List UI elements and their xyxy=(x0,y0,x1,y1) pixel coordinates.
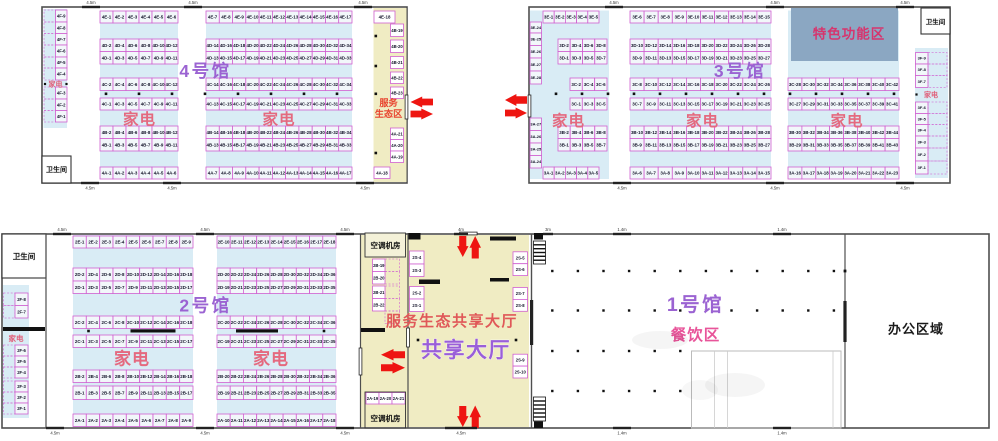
svg-text:3C-17: 3C-17 xyxy=(701,102,714,107)
svg-text:2A-12: 2A-12 xyxy=(244,418,257,423)
svg-text:3E-5: 3E-5 xyxy=(589,15,599,20)
svg-text:2B-28: 2B-28 xyxy=(270,374,283,379)
svg-text:4E-4: 4E-4 xyxy=(141,15,151,20)
svg-text:2E-10: 2E-10 xyxy=(218,240,230,245)
svg-text:3C-25: 3C-25 xyxy=(758,102,771,107)
svg-text:4F-8: 4F-8 xyxy=(57,25,66,30)
svg-text:2A-14: 2A-14 xyxy=(270,418,283,423)
svg-text:3C-33: 3C-33 xyxy=(831,102,844,107)
svg-text:4F-3: 4F-3 xyxy=(57,91,66,96)
svg-text:4.5m: 4.5m xyxy=(900,186,910,191)
svg-text:3D-17: 3D-17 xyxy=(687,55,700,60)
svg-text:2E-1: 2E-1 xyxy=(75,240,85,245)
svg-text:3C-15: 3C-15 xyxy=(687,102,700,107)
svg-text:3C-10: 3C-10 xyxy=(645,82,658,87)
svg-text:2D-15: 2D-15 xyxy=(167,285,180,290)
svg-text:3E-14: 3E-14 xyxy=(744,15,756,20)
svg-text:3C-2: 3C-2 xyxy=(571,82,581,87)
svg-text:3D-28: 3D-28 xyxy=(758,43,771,48)
svg-text:4E-10: 4E-10 xyxy=(247,15,259,20)
svg-text:卫生间: 卫生间 xyxy=(13,251,36,261)
svg-text:服务: 服务 xyxy=(379,97,398,108)
svg-text:4A-2: 4A-2 xyxy=(115,171,125,176)
svg-text:3B-7: 3B-7 xyxy=(596,142,606,147)
svg-text:4C-29: 4C-29 xyxy=(313,102,326,107)
svg-text:2D-9: 2D-9 xyxy=(128,285,138,290)
svg-text:3D-19: 3D-19 xyxy=(701,55,714,60)
svg-text:2A-9: 2A-9 xyxy=(181,418,191,423)
svg-text:3B-42: 3B-42 xyxy=(872,130,885,135)
svg-text:服务生态共享大厅: 服务生态共享大厅 xyxy=(386,312,518,330)
svg-text:4C-3: 4C-3 xyxy=(115,102,125,107)
svg-text:2C-36: 2C-36 xyxy=(323,320,336,325)
svg-text:4E-3: 4E-3 xyxy=(128,15,138,20)
svg-text:2E-7: 2E-7 xyxy=(155,240,165,245)
svg-text:4C-18: 4C-18 xyxy=(233,82,246,87)
svg-text:3B-25: 3B-25 xyxy=(744,142,757,147)
svg-text:3E-9: 3E-9 xyxy=(675,15,685,20)
svg-text:2D-35: 2D-35 xyxy=(323,285,336,290)
svg-text:3A-10: 3A-10 xyxy=(687,171,700,176)
svg-text:2A-15: 2A-15 xyxy=(284,418,297,423)
svg-text:2S-4: 2S-4 xyxy=(412,255,422,260)
svg-text:4B-15: 4B-15 xyxy=(220,142,233,147)
svg-text:4F-5: 4F-5 xyxy=(57,60,66,65)
svg-text:2D-11: 2D-11 xyxy=(140,285,152,290)
svg-text:2C-26: 2C-26 xyxy=(257,320,270,325)
svg-text:3C-31: 3C-31 xyxy=(817,102,830,107)
svg-text:3F-5: 3F-5 xyxy=(918,116,927,121)
svg-text:3B-9: 3B-9 xyxy=(632,142,642,147)
svg-text:3B-44: 3B-44 xyxy=(886,130,899,135)
svg-text:3E-3: 3E-3 xyxy=(566,15,576,20)
svg-text:2A-5: 2A-5 xyxy=(128,418,138,423)
svg-text:4B-12: 4B-12 xyxy=(165,130,178,135)
svg-text:2D-14: 2D-14 xyxy=(154,272,167,277)
svg-text:4B-11: 4B-11 xyxy=(166,142,178,147)
svg-text:2D-18: 2D-18 xyxy=(180,272,193,277)
svg-text:4B-25: 4B-25 xyxy=(286,142,299,147)
svg-text:特色功能区: 特色功能区 xyxy=(813,26,886,42)
svg-text:4A-12: 4A-12 xyxy=(273,171,286,176)
svg-text:3B-17: 3B-17 xyxy=(687,142,700,147)
svg-text:家电: 家电 xyxy=(686,111,719,130)
svg-text:3E-6: 3E-6 xyxy=(632,15,642,20)
svg-text:2B-35: 2B-35 xyxy=(323,390,336,395)
svg-text:4E-16: 4E-16 xyxy=(326,15,338,20)
svg-text:4B-29: 4B-29 xyxy=(313,142,326,147)
svg-text:2B-19: 2B-19 xyxy=(373,263,385,268)
svg-text:4A-17: 4A-17 xyxy=(339,171,352,176)
svg-text:3C-7: 3C-7 xyxy=(632,102,642,107)
svg-text:3A-24: 3A-24 xyxy=(530,159,542,164)
svg-text:3B-21: 3B-21 xyxy=(716,142,729,147)
svg-text:2F-6: 2F-6 xyxy=(17,348,26,353)
svg-text:4E-14: 4E-14 xyxy=(300,15,312,20)
svg-text:3B-5: 3B-5 xyxy=(584,142,594,147)
svg-text:2A-18: 2A-18 xyxy=(323,418,336,423)
svg-text:3A-25: 3A-25 xyxy=(530,147,542,152)
svg-text:3C-35: 3C-35 xyxy=(844,102,857,107)
svg-text:3A-14: 3A-14 xyxy=(744,171,757,176)
svg-text:3F-3: 3F-3 xyxy=(918,139,927,144)
svg-text:3C-3: 3C-3 xyxy=(584,102,594,107)
svg-text:2D-13: 2D-13 xyxy=(154,285,167,290)
svg-text:2D-8: 2D-8 xyxy=(115,272,125,277)
svg-text:4C-9: 4C-9 xyxy=(154,102,164,107)
svg-text:4A-21: 4A-21 xyxy=(391,131,403,136)
svg-text:2B-13: 2B-13 xyxy=(154,390,167,395)
svg-text:2D-10: 2D-10 xyxy=(127,272,140,277)
svg-text:2C-3: 2C-3 xyxy=(88,339,98,344)
svg-text:2D-4: 2D-4 xyxy=(88,272,98,277)
svg-text:2E-18: 2E-18 xyxy=(323,240,335,245)
svg-text:4D-29: 4D-29 xyxy=(313,55,326,60)
svg-text:2C-28: 2C-28 xyxy=(270,320,283,325)
svg-text:4C-22: 4C-22 xyxy=(260,82,273,87)
svg-text:2F-5: 2F-5 xyxy=(17,359,26,364)
svg-text:2B-31: 2B-31 xyxy=(297,390,310,395)
svg-text:4C-25: 4C-25 xyxy=(286,102,299,107)
svg-text:2B-19: 2B-19 xyxy=(218,390,231,395)
svg-text:2B-16: 2B-16 xyxy=(167,374,180,379)
svg-text:4D-13: 4D-13 xyxy=(207,55,220,60)
svg-text:3A-15: 3A-15 xyxy=(758,171,771,176)
svg-text:3B-40: 3B-40 xyxy=(858,130,871,135)
svg-text:家电: 家电 xyxy=(114,349,150,369)
svg-text:4C-24: 4C-24 xyxy=(273,82,286,87)
svg-text:3A-5: 3A-5 xyxy=(589,171,599,176)
svg-text:2D-28: 2D-28 xyxy=(270,272,283,277)
svg-text:3A-12: 3A-12 xyxy=(716,171,729,176)
svg-text:2B-7: 2B-7 xyxy=(115,390,125,395)
svg-text:3D-24: 3D-24 xyxy=(730,43,743,48)
svg-text:4B-31: 4B-31 xyxy=(326,142,339,147)
svg-text:4B-19: 4B-19 xyxy=(246,142,259,147)
svg-text:4B-23: 4B-23 xyxy=(391,90,403,95)
svg-text:2D-2: 2D-2 xyxy=(75,272,85,277)
svg-text:3C-34: 3C-34 xyxy=(831,82,844,87)
svg-text:2C-22: 2C-22 xyxy=(231,320,244,325)
svg-text:家电: 家电 xyxy=(123,110,156,129)
svg-text:2B-22: 2B-22 xyxy=(231,374,244,379)
svg-text:2S-9: 2S-9 xyxy=(516,358,526,363)
svg-text:4C-4: 4C-4 xyxy=(115,82,125,87)
svg-text:3B-4: 3B-4 xyxy=(572,130,582,135)
svg-text:3B-32: 3B-32 xyxy=(803,130,816,135)
svg-text:2D-23: 2D-23 xyxy=(244,285,257,290)
svg-text:3B-18: 3B-18 xyxy=(687,130,700,135)
svg-text:3C-16: 3C-16 xyxy=(687,82,700,87)
svg-text:2D-26: 2D-26 xyxy=(257,272,270,277)
svg-text:2B-23: 2B-23 xyxy=(244,390,257,395)
svg-text:2B-27: 2B-27 xyxy=(270,390,283,395)
svg-text:3D-9: 3D-9 xyxy=(632,55,642,60)
svg-text:2E-12: 2E-12 xyxy=(244,240,256,245)
svg-text:4A-1: 4A-1 xyxy=(102,171,112,176)
svg-text:4E-6: 4E-6 xyxy=(167,15,177,20)
svg-text:2B-11: 2B-11 xyxy=(140,390,152,395)
svg-text:2B-25: 2B-25 xyxy=(257,390,270,395)
svg-text:办公区域: 办公区域 xyxy=(888,322,944,337)
svg-text:3E-28: 3E-28 xyxy=(530,75,541,80)
svg-text:2D-36: 2D-36 xyxy=(323,272,336,277)
svg-text:4F-1: 4F-1 xyxy=(57,114,66,119)
svg-text:2A-7: 2A-7 xyxy=(155,418,165,423)
svg-text:2D-20: 2D-20 xyxy=(218,272,231,277)
svg-text:4.5m: 4.5m xyxy=(57,227,67,232)
svg-text:2S-7: 2S-7 xyxy=(516,291,526,296)
svg-text:2E-3: 2E-3 xyxy=(102,240,112,245)
svg-text:4C-14: 4C-14 xyxy=(207,82,220,87)
svg-text:2D-27: 2D-27 xyxy=(270,285,283,290)
svg-text:2S-3: 2S-3 xyxy=(412,268,422,273)
svg-text:3B-19: 3B-19 xyxy=(701,142,714,147)
svg-text:4F-6: 4F-6 xyxy=(57,49,66,54)
svg-text:3B-6: 3B-6 xyxy=(584,130,594,135)
svg-text:4B-9: 4B-9 xyxy=(154,142,164,147)
svg-text:4E-7: 4E-7 xyxy=(208,15,218,20)
svg-text:3A-7: 3A-7 xyxy=(646,171,656,176)
svg-text:2D-6: 2D-6 xyxy=(101,272,111,277)
svg-text:2C-6: 2C-6 xyxy=(101,320,111,325)
svg-text:4E-8: 4E-8 xyxy=(221,15,231,20)
svg-text:2C-23: 2C-23 xyxy=(244,339,257,344)
svg-text:2A-16: 2A-16 xyxy=(297,418,310,423)
svg-text:3A-26: 3A-26 xyxy=(530,134,542,139)
svg-text:4A-14: 4A-14 xyxy=(299,171,312,176)
svg-text:3F-7: 3F-7 xyxy=(918,79,927,84)
svg-text:3A-2: 3A-2 xyxy=(555,171,565,176)
svg-text:3B-38: 3B-38 xyxy=(844,130,857,135)
svg-text:3E-12: 3E-12 xyxy=(716,15,728,20)
svg-text:4A-13: 4A-13 xyxy=(286,171,299,176)
svg-text:2C-34: 2C-34 xyxy=(310,320,323,325)
svg-text:2C-1: 2C-1 xyxy=(75,339,85,344)
svg-text:3C-5: 3C-5 xyxy=(596,102,606,107)
svg-text:3A-20: 3A-20 xyxy=(844,171,857,176)
svg-text:3C-36: 3C-36 xyxy=(844,82,857,87)
svg-text:4D-15: 4D-15 xyxy=(220,55,233,60)
svg-text:2C-33: 2C-33 xyxy=(310,339,323,344)
svg-text:3D-13: 3D-13 xyxy=(659,55,672,60)
svg-text:4A-5: 4A-5 xyxy=(154,171,164,176)
svg-text:共享大厅: 共享大厅 xyxy=(421,338,511,362)
svg-text:家电: 家电 xyxy=(830,111,863,130)
svg-text:4D-11: 4D-11 xyxy=(166,55,178,60)
svg-text:4B-22: 4B-22 xyxy=(260,130,273,135)
svg-text:4D-3: 4D-3 xyxy=(115,55,125,60)
svg-text:4C-17: 4C-17 xyxy=(233,102,246,107)
svg-text:4D-4: 4D-4 xyxy=(115,43,125,48)
svg-text:2B-21: 2B-21 xyxy=(231,390,244,395)
svg-text:2B-14: 2B-14 xyxy=(154,374,167,379)
svg-text:2C-30: 2C-30 xyxy=(284,320,297,325)
svg-text:3D-21: 3D-21 xyxy=(716,55,729,60)
svg-text:4D-8: 4D-8 xyxy=(141,43,151,48)
svg-text:3D-4: 3D-4 xyxy=(572,43,582,48)
svg-text:2D-1: 2D-1 xyxy=(75,285,85,290)
svg-text:2S-2: 2S-2 xyxy=(412,290,422,295)
svg-text:2C-12: 2C-12 xyxy=(140,320,153,325)
svg-text:4E-15: 4E-15 xyxy=(313,15,325,20)
svg-text:1.4m: 1.4m xyxy=(777,227,787,232)
svg-text:4D-30: 4D-30 xyxy=(313,43,326,48)
svg-text:3E-26: 3E-26 xyxy=(530,49,541,54)
svg-text:4.5m: 4.5m xyxy=(358,0,368,5)
svg-text:2A-2: 2A-2 xyxy=(88,418,98,423)
svg-text:2E-17: 2E-17 xyxy=(310,240,322,245)
svg-text:4B-3: 4B-3 xyxy=(115,142,125,147)
svg-text:4.5m: 4.5m xyxy=(617,186,627,191)
svg-text:2B-4: 2B-4 xyxy=(88,374,98,379)
svg-text:2A-4: 2A-4 xyxy=(115,418,125,423)
svg-text:4D-25: 4D-25 xyxy=(286,55,299,60)
svg-text:4B-33: 4B-33 xyxy=(339,142,352,147)
svg-text:3B-12: 3B-12 xyxy=(645,130,658,135)
svg-text:3B-29: 3B-29 xyxy=(789,142,802,147)
svg-text:2D-19: 2D-19 xyxy=(218,285,231,290)
svg-text:2S-1: 2S-1 xyxy=(412,303,422,308)
svg-text:4E-9: 4E-9 xyxy=(235,15,245,20)
svg-text:4C-32: 4C-32 xyxy=(326,82,339,87)
svg-text:3B-14: 3B-14 xyxy=(659,130,672,135)
svg-text:3F-9: 3F-9 xyxy=(918,56,927,61)
svg-text:3C-18: 3C-18 xyxy=(701,82,714,87)
svg-text:3E-11: 3E-11 xyxy=(702,15,714,20)
svg-text:4D-14: 4D-14 xyxy=(207,43,220,48)
svg-text:4B-4: 4B-4 xyxy=(115,130,125,135)
svg-text:4D-24: 4D-24 xyxy=(273,43,286,48)
svg-text:4.5m: 4.5m xyxy=(456,431,466,436)
svg-text:2F-8: 2F-8 xyxy=(17,297,26,302)
svg-text:4C-28: 4C-28 xyxy=(299,82,312,87)
svg-text:4C-8: 4C-8 xyxy=(141,82,151,87)
svg-text:4C-19: 4C-19 xyxy=(246,102,259,107)
svg-text:3A-19: 3A-19 xyxy=(831,171,844,176)
svg-text:2D-12: 2D-12 xyxy=(140,272,153,277)
svg-text:3号馆: 3号馆 xyxy=(714,61,766,81)
svg-text:4B-26: 4B-26 xyxy=(286,130,299,135)
svg-text:3E-25: 3E-25 xyxy=(530,37,541,42)
svg-text:4A-18: 4A-18 xyxy=(376,170,388,175)
svg-text:4B-13: 4B-13 xyxy=(207,142,220,147)
svg-text:2B-32: 2B-32 xyxy=(297,374,310,379)
svg-text:2B-1: 2B-1 xyxy=(75,390,85,395)
svg-text:3E-10: 3E-10 xyxy=(687,15,699,20)
svg-text:3D-27: 3D-27 xyxy=(758,55,771,60)
svg-text:3B-10: 3B-10 xyxy=(631,130,644,135)
svg-text:3C-41: 3C-41 xyxy=(886,102,899,107)
svg-text:3B-34: 3B-34 xyxy=(817,130,830,135)
svg-text:4.5m: 4.5m xyxy=(85,186,95,191)
svg-text:4B-8: 4B-8 xyxy=(141,130,151,135)
svg-text:3A-3: 3A-3 xyxy=(566,171,576,176)
svg-text:2F-4: 2F-4 xyxy=(17,370,26,375)
svg-text:2E-13: 2E-13 xyxy=(257,240,269,245)
svg-text:4B-24: 4B-24 xyxy=(273,130,286,135)
svg-text:4.5m: 4.5m xyxy=(340,431,350,436)
svg-text:3E-8: 3E-8 xyxy=(661,15,671,20)
svg-text:3D-16: 3D-16 xyxy=(673,43,686,48)
svg-text:3C-26: 3C-26 xyxy=(758,82,771,87)
svg-text:3C-13: 3C-13 xyxy=(673,102,686,107)
svg-text:4.5m: 4.5m xyxy=(770,0,780,5)
svg-text:2F-7: 2F-7 xyxy=(17,309,26,314)
svg-text:3B-35: 3B-35 xyxy=(831,142,844,147)
svg-text:4A-10: 4A-10 xyxy=(246,171,259,176)
svg-text:3C-21: 3C-21 xyxy=(730,102,743,107)
svg-text:4E-11: 4E-11 xyxy=(260,15,272,20)
svg-text:2D-16: 2D-16 xyxy=(167,272,180,277)
svg-text:2D-31: 2D-31 xyxy=(297,285,310,290)
svg-text:4E-1: 4E-1 xyxy=(102,15,112,20)
svg-text:3C-29: 3C-29 xyxy=(803,102,816,107)
svg-text:2A-10: 2A-10 xyxy=(218,418,231,423)
svg-text:2B-20: 2B-20 xyxy=(218,374,231,379)
svg-text:2B-30: 2B-30 xyxy=(284,374,297,379)
svg-text:3C-4: 3C-4 xyxy=(584,82,594,87)
svg-text:3A-8: 3A-8 xyxy=(660,171,670,176)
svg-text:家电: 家电 xyxy=(9,333,24,343)
svg-text:3D-3: 3D-3 xyxy=(572,55,582,60)
svg-text:空调机房: 空调机房 xyxy=(371,240,401,250)
svg-text:2A-19: 2A-19 xyxy=(367,396,379,401)
svg-text:2号馆: 2号馆 xyxy=(179,296,231,316)
svg-text:3B-8: 3B-8 xyxy=(596,130,606,135)
svg-text:2E-14: 2E-14 xyxy=(271,240,283,245)
svg-text:4D-7: 4D-7 xyxy=(141,55,151,60)
svg-text:2D-34: 2D-34 xyxy=(310,272,323,277)
svg-text:3C-39: 3C-39 xyxy=(872,102,885,107)
svg-text:4C-6: 4C-6 xyxy=(128,82,138,87)
svg-text:3B-20: 3B-20 xyxy=(701,130,714,135)
svg-text:4D-17: 4D-17 xyxy=(233,55,246,60)
svg-text:4E-18: 4E-18 xyxy=(379,15,391,20)
svg-text:4A-3: 4A-3 xyxy=(128,171,138,176)
svg-text:4B-10: 4B-10 xyxy=(152,130,165,135)
svg-text:2D-24: 2D-24 xyxy=(244,272,257,277)
svg-text:4B-1: 4B-1 xyxy=(102,142,112,147)
svg-text:4D-10: 4D-10 xyxy=(152,43,165,48)
svg-text:家电: 家电 xyxy=(49,80,63,89)
svg-text:4F-9: 4F-9 xyxy=(57,14,66,19)
svg-text:3D-20: 3D-20 xyxy=(701,43,714,48)
svg-text:4D-2: 4D-2 xyxy=(102,43,112,48)
svg-text:3C-24: 3C-24 xyxy=(744,82,757,87)
svg-text:4D-32: 4D-32 xyxy=(326,43,339,48)
svg-text:3B-24: 3B-24 xyxy=(730,130,743,135)
svg-text:3C-12: 3C-12 xyxy=(659,82,672,87)
svg-text:3A-23: 3A-23 xyxy=(886,171,899,176)
svg-text:3E-27: 3E-27 xyxy=(530,62,541,67)
svg-text:2S-8: 2S-8 xyxy=(516,303,526,308)
svg-text:3B-41: 3B-41 xyxy=(872,142,885,147)
svg-text:3E-1: 3E-1 xyxy=(544,15,554,20)
svg-text:3m: 3m xyxy=(545,227,551,232)
svg-text:2A-21: 2A-21 xyxy=(393,396,405,401)
svg-text:3C-28: 3C-28 xyxy=(789,82,802,87)
svg-text:2C-10: 2C-10 xyxy=(127,320,140,325)
svg-text:1.4m: 1.4m xyxy=(777,431,787,436)
svg-text:2S-10: 2S-10 xyxy=(515,370,527,375)
svg-text:3D-18: 3D-18 xyxy=(687,43,700,48)
svg-text:3C-8: 3C-8 xyxy=(632,82,642,87)
svg-text:4B-14: 4B-14 xyxy=(207,130,220,135)
svg-text:3C-6: 3C-6 xyxy=(596,82,606,87)
svg-text:2C-35: 2C-35 xyxy=(323,339,336,344)
svg-text:4F-7: 4F-7 xyxy=(57,37,66,42)
